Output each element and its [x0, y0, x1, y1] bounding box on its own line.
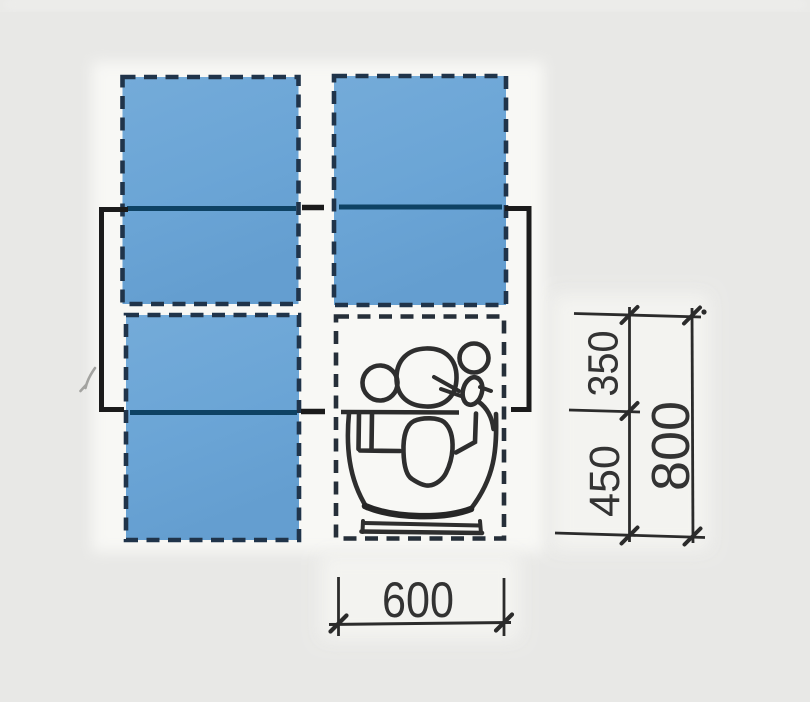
svg-text:800: 800	[641, 401, 701, 491]
svg-text:350: 350	[580, 331, 628, 397]
svg-text:600: 600	[382, 572, 454, 628]
svg-text:450: 450	[581, 445, 629, 517]
